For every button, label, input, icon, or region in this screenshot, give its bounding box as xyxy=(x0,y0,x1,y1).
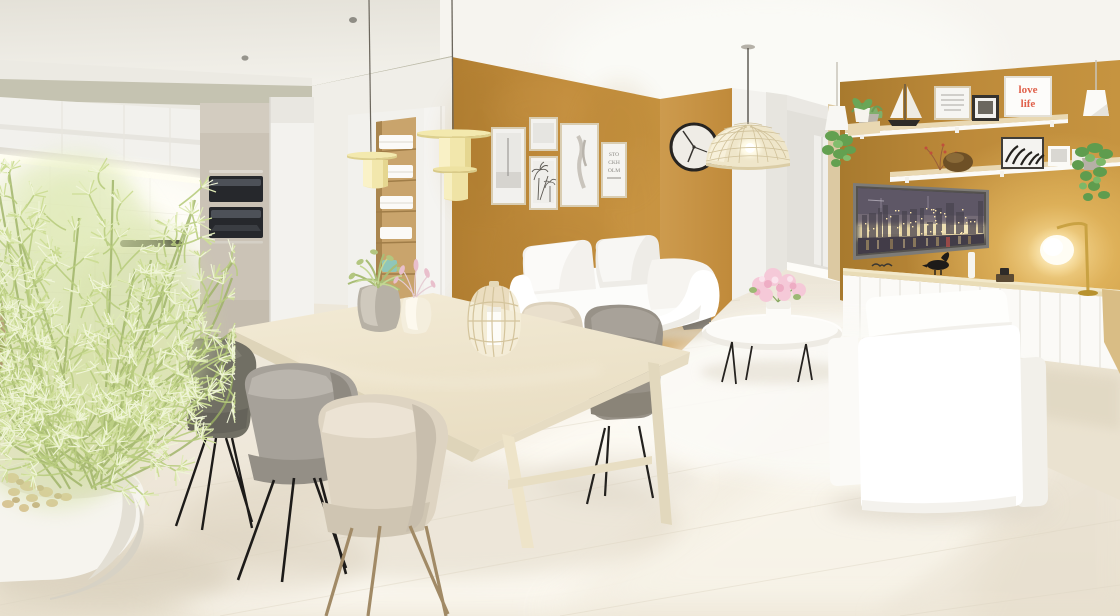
svg-text:STO: STO xyxy=(609,152,619,158)
svg-text:OLM: OLM xyxy=(608,168,620,174)
svg-text:CKH: CKH xyxy=(608,160,620,166)
svg-text:life: life xyxy=(1021,98,1036,110)
svg-text:love: love xyxy=(1019,84,1038,96)
